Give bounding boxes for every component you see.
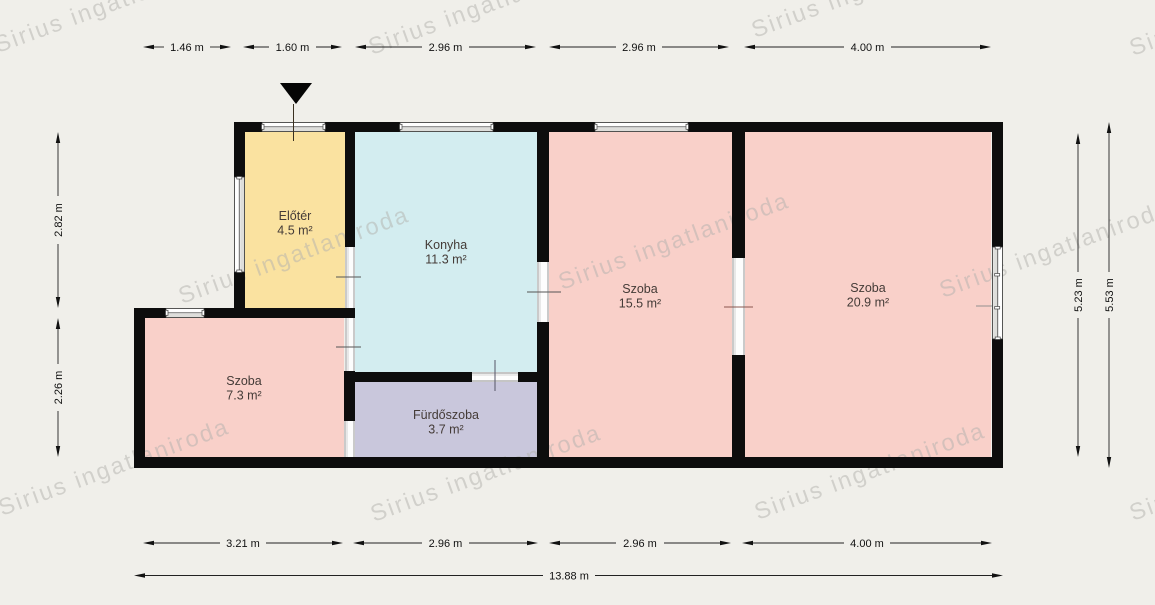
svg-text:2.96 m: 2.96 m <box>623 538 657 550</box>
svg-text:4.00 m: 4.00 m <box>851 42 885 54</box>
svg-text:13.88 m: 13.88 m <box>549 571 589 583</box>
svg-text:Szoba: Szoba <box>226 374 261 388</box>
svg-text:2.96 m: 2.96 m <box>622 42 656 54</box>
svg-text:4.5 m²: 4.5 m² <box>277 224 312 238</box>
svg-text:3.7 m²: 3.7 m² <box>428 423 463 437</box>
svg-text:5.53 m: 5.53 m <box>1104 278 1116 312</box>
svg-text:1.46 m: 1.46 m <box>170 42 204 54</box>
svg-text:2.82 m: 2.82 m <box>53 203 65 237</box>
svg-text:Fürdőszoba: Fürdőszoba <box>413 408 479 422</box>
svg-text:2.26 m: 2.26 m <box>53 371 65 405</box>
svg-text:5.23 m: 5.23 m <box>1073 278 1085 312</box>
svg-text:3.21 m: 3.21 m <box>226 538 260 550</box>
svg-text:Szoba: Szoba <box>850 281 885 295</box>
svg-text:1.60 m: 1.60 m <box>276 42 310 54</box>
svg-text:20.9 m²: 20.9 m² <box>847 296 889 310</box>
svg-text:15.5 m²: 15.5 m² <box>619 297 661 311</box>
svg-text:Konyha: Konyha <box>425 238 467 252</box>
svg-text:7.3 m²: 7.3 m² <box>226 389 261 403</box>
svg-text:2.96 m: 2.96 m <box>429 538 463 550</box>
svg-text:11.3 m²: 11.3 m² <box>425 253 466 267</box>
svg-text:Szoba: Szoba <box>622 282 657 296</box>
svg-text:Előtér: Előtér <box>279 209 312 223</box>
svg-text:4.00 m: 4.00 m <box>850 538 884 550</box>
svg-text:2.96 m: 2.96 m <box>429 42 463 54</box>
